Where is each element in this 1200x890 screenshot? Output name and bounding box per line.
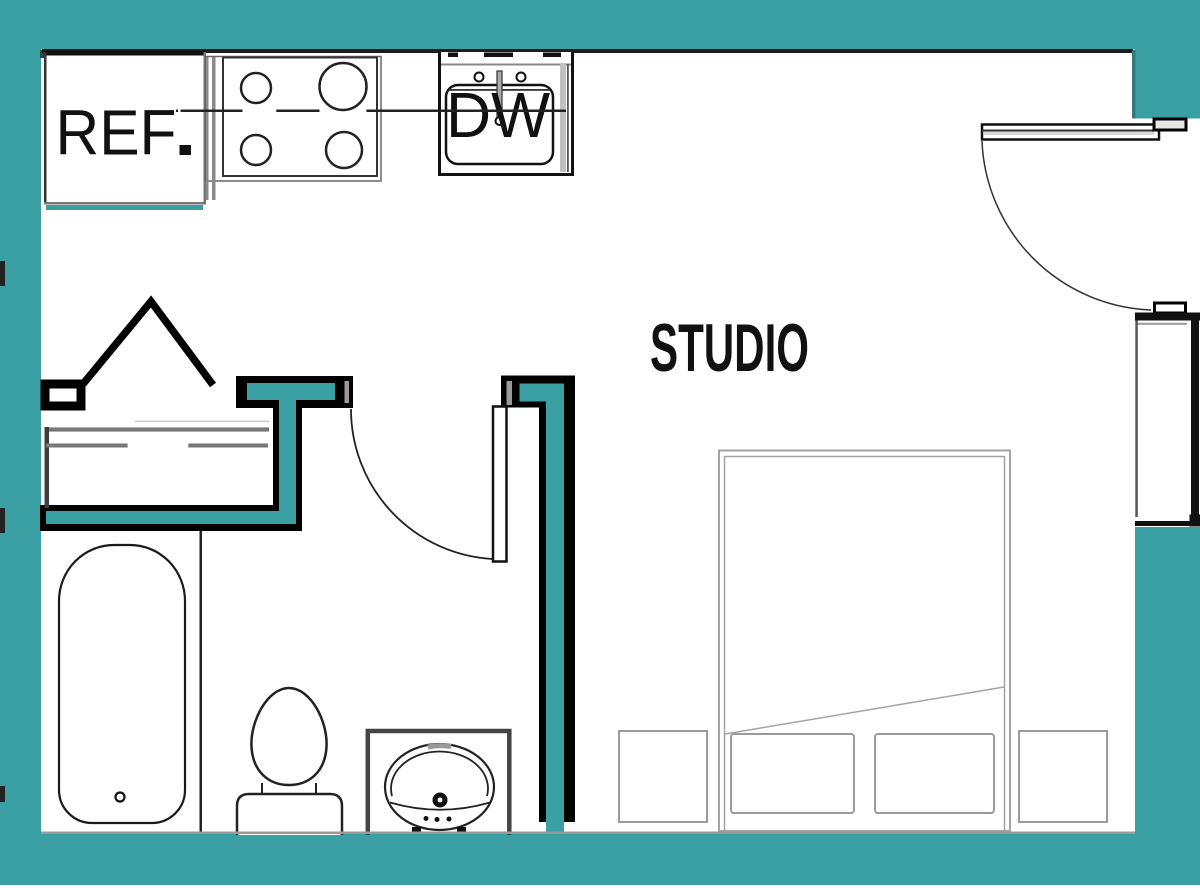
- svg-text:REF: REF: [56, 97, 177, 169]
- svg-text:STUDIO: STUDIO: [650, 310, 809, 386]
- svg-text:DW: DW: [446, 79, 551, 151]
